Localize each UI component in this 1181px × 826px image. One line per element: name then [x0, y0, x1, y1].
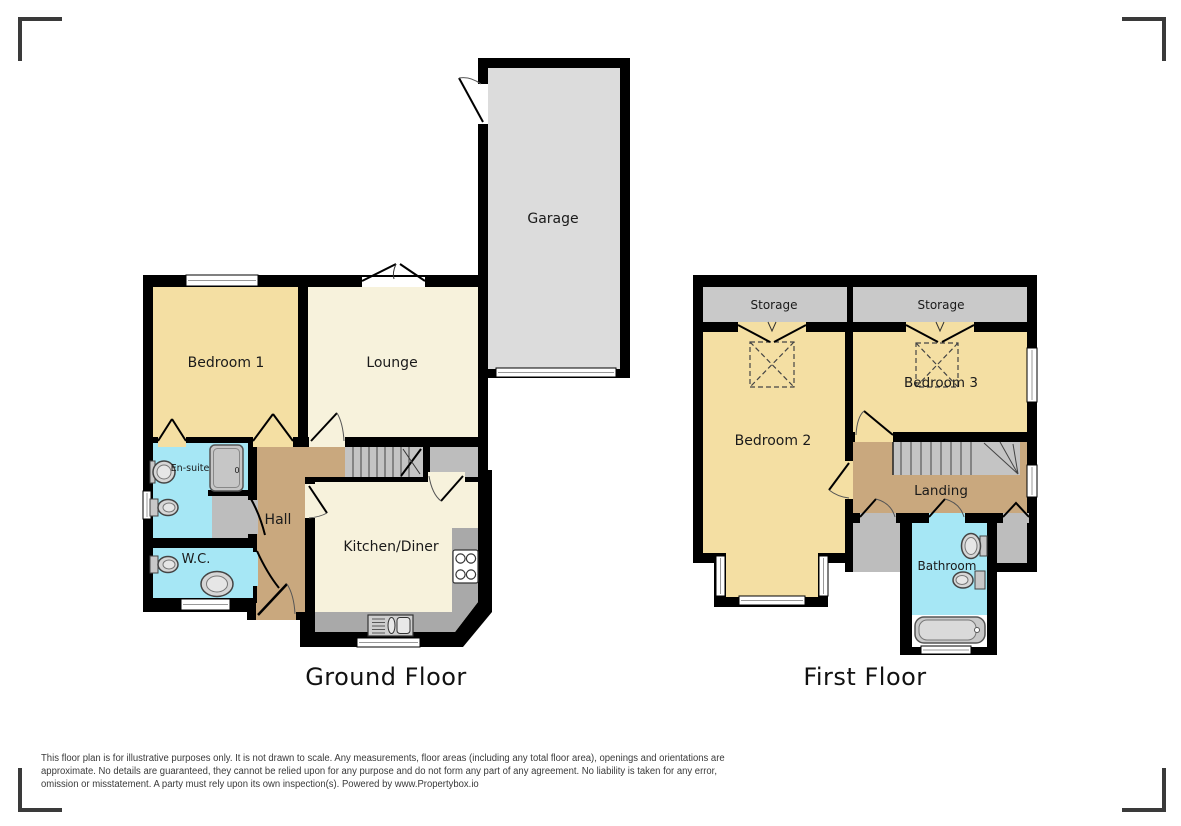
disclaimer-line-1: This floor plan is for illustrative purp… — [41, 752, 839, 765]
garage-door — [496, 368, 616, 377]
garage-label: Garage — [527, 211, 578, 227]
wc-sink-icon — [201, 572, 233, 597]
kitchen-label: Kitchen/Diner — [343, 539, 438, 555]
bay-window-floor — [726, 548, 818, 597]
kitchen-window — [357, 638, 420, 647]
bedroom1-window — [186, 275, 258, 286]
bathroom-sink-icon — [962, 534, 988, 559]
bedroom3-label: Bedroom 3 — [904, 375, 978, 391]
hall-label: Hall — [265, 512, 292, 528]
floor-plan-svg: Garage Bedroom 1 Lounge En-suite W.C. Ha… — [0, 0, 1181, 826]
wc-label: W.C. — [182, 552, 211, 567]
cupboard-left — [853, 523, 900, 572]
bath-icon — [915, 617, 985, 643]
bay-window-left — [716, 556, 725, 596]
kitchen-sink-icon — [368, 615, 413, 636]
bathroom-label: Bathroom — [918, 559, 977, 573]
bathroom-toilet-icon — [953, 571, 985, 589]
ensuite-cupboard — [212, 496, 248, 538]
bedroom1-label: Bedroom 1 — [188, 355, 265, 371]
wc-toilet-icon — [150, 556, 178, 573]
landing-label: Landing — [914, 483, 968, 499]
lounge-label: Lounge — [366, 355, 417, 371]
bedroom2-label: Bedroom 2 — [735, 433, 812, 449]
landing-window — [1027, 465, 1037, 497]
ground-floor-plan: Garage Bedroom 1 Lounge En-suite W.C. Ha… — [143, 58, 630, 647]
bay-window-right — [819, 556, 828, 596]
ensuite-toilet-icon — [150, 499, 178, 516]
storage-right-label: Storage — [918, 298, 965, 312]
ensuite-label: En-suite — [171, 463, 210, 474]
wc-window — [181, 599, 230, 610]
ground-floor-title: Ground Floor — [305, 663, 467, 691]
first-floor-plan: Storage Storage Bedroom 2 Bedroom 3 Land… — [693, 275, 1037, 655]
shower-drain-label: 0 — [234, 466, 239, 475]
disclaimer-line-3: omission or misstatement. A party must r… — [41, 778, 839, 791]
cupboard-right — [997, 523, 1027, 563]
bedroom3-window — [1027, 348, 1037, 402]
hob-icon — [453, 550, 478, 583]
disclaimer-line-2: approximate. No details are guaranteed, … — [41, 765, 839, 778]
bathroom-window — [921, 646, 971, 654]
storage-left-label: Storage — [751, 298, 798, 312]
disclaimer-text: This floor plan is for illustrative purp… — [41, 752, 839, 791]
bay-window-bottom — [739, 596, 805, 605]
first-floor-title: First Floor — [803, 663, 926, 691]
